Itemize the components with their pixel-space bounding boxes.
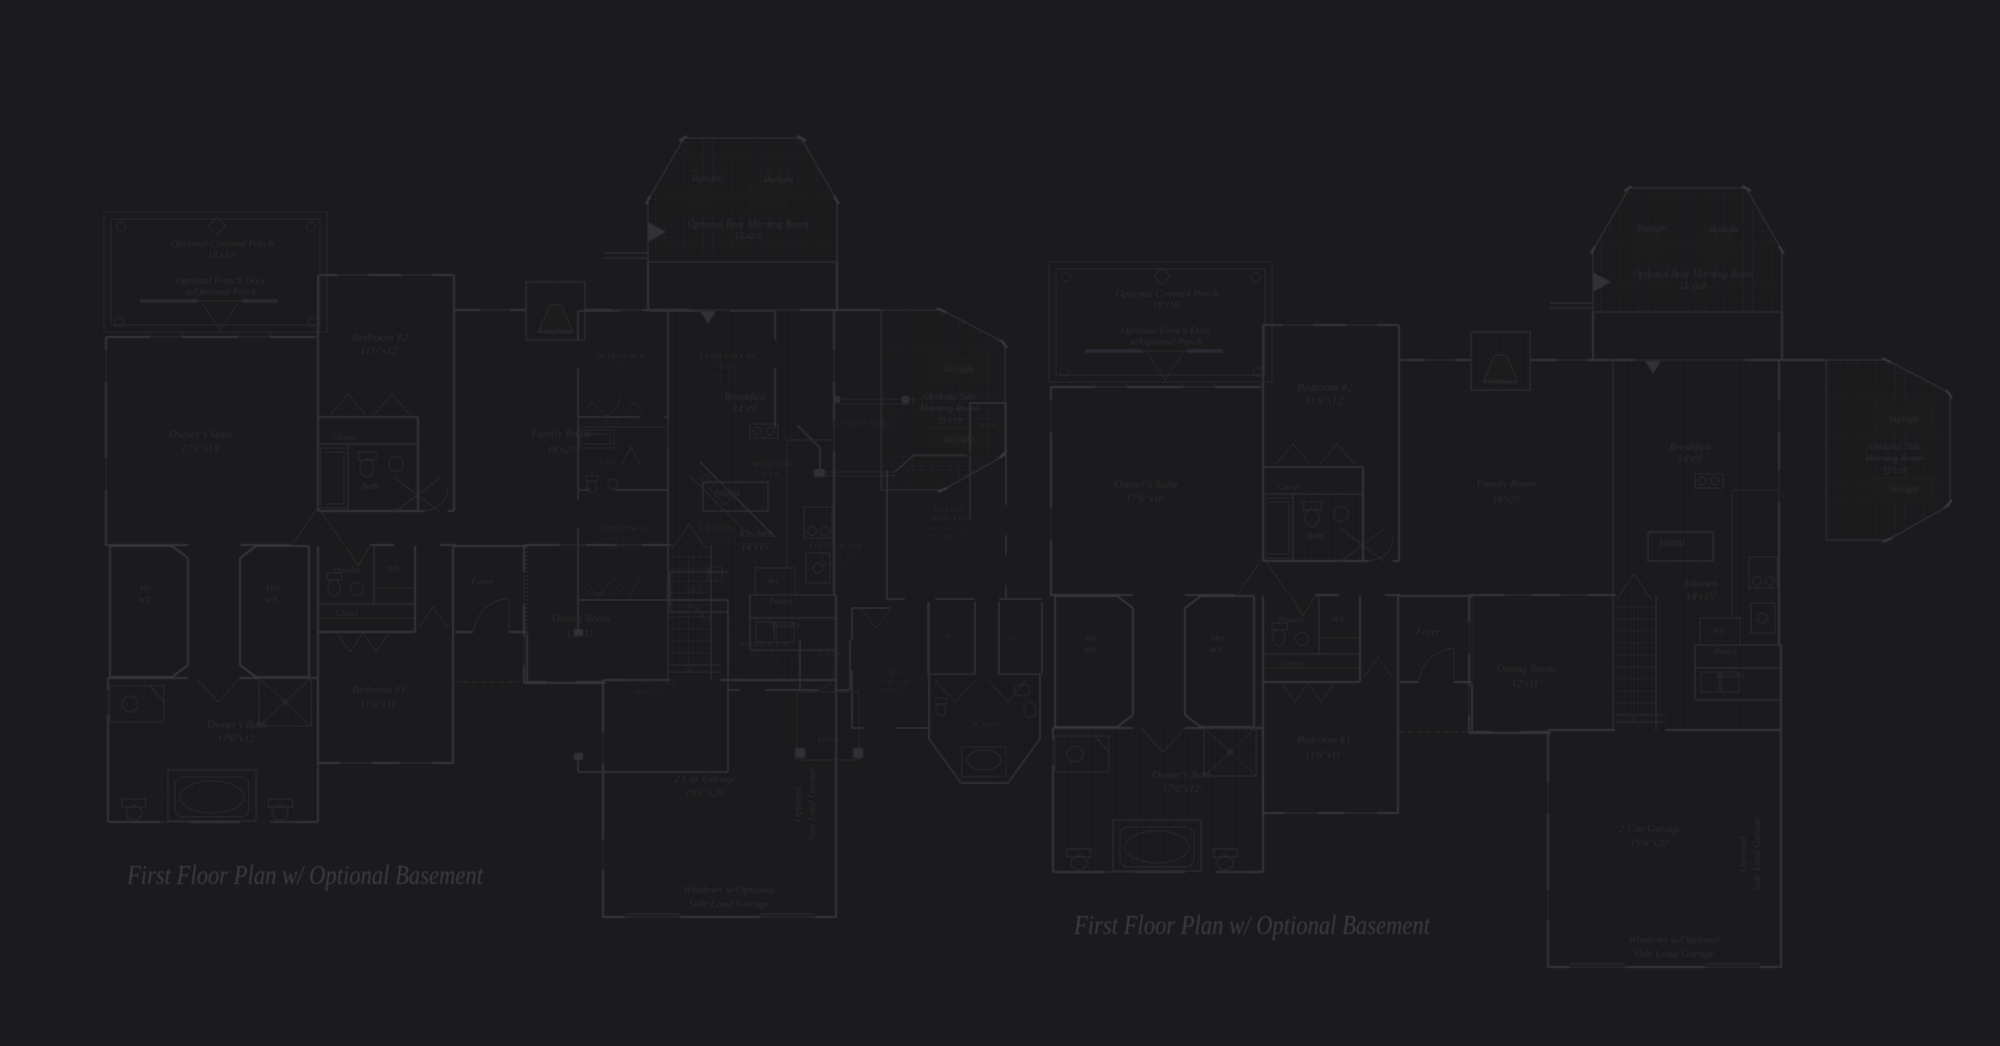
svg-text:First Floor Plan w/ Optional: First Floor Plan w/ Optional Basement xyxy=(126,860,484,890)
svg-text:Bedroom #1: Bedroom #1 xyxy=(352,684,406,696)
svg-text:Fireplace: Fireplace xyxy=(538,326,572,336)
svg-text:WIC: WIC xyxy=(265,595,282,605)
svg-text:Bedroom #2: Bedroom #2 xyxy=(352,332,408,344)
svg-text:11'-2"x13'-0": 11'-2"x13'-0" xyxy=(699,536,734,543)
svg-text:13'-6"x17'-10": 13'-6"x17'-10" xyxy=(817,553,855,560)
svg-text:18'x10': 18'x10' xyxy=(208,250,238,261)
svg-text:Closet: Closet xyxy=(332,432,356,442)
svg-text:Her: Her xyxy=(265,583,280,593)
svg-text:ENTRY: ENTRY xyxy=(818,736,841,744)
svg-text:2 Car Garage: 2 Car Garage xyxy=(674,773,736,785)
svg-text:Closet: Closet xyxy=(335,608,359,618)
svg-text:9'-0" TRAY CLG: 9'-0" TRAY CLG xyxy=(929,534,968,540)
svg-text:Optional: Optional xyxy=(793,786,804,822)
svg-text:W: W xyxy=(713,576,719,582)
svg-text:Optional Covered Porch: Optional Covered Porch xyxy=(170,239,273,250)
svg-text:MASTER: MASTER xyxy=(933,505,963,514)
svg-text:Owner's Bath: Owner's Bath xyxy=(207,719,268,731)
svg-text:Skylight: Skylight xyxy=(691,174,722,184)
svg-text:Optional Side: Optional Side xyxy=(924,392,977,402)
svg-text:14'x15': 14'x15' xyxy=(741,542,772,553)
svg-text:Skylight: Skylight xyxy=(944,365,975,375)
svg-text:17'-8"x15'-2": 17'-8"x15'-2" xyxy=(710,364,745,371)
svg-text:His: His xyxy=(139,583,153,593)
svg-text:17'6"x12': 17'6"x12' xyxy=(217,734,258,745)
svg-text:W.I.C.: W.I.C. xyxy=(946,633,963,640)
svg-text:Ref.: Ref. xyxy=(767,576,780,585)
svg-text:1 CAR GARAGE: 1 CAR GARAGE xyxy=(624,678,679,687)
svg-text:UTILITY: UTILITY xyxy=(682,587,710,595)
svg-text:w/Optional Porch: w/Optional Porch xyxy=(185,287,257,298)
svg-text:20'-4"x12'-8": 20'-4"x12'-8" xyxy=(634,689,669,696)
svg-text:9'-0" CLG: 9'-0" CLG xyxy=(881,688,907,694)
svg-text:FOYER: FOYER xyxy=(817,650,842,659)
svg-text:11'6"x11': 11'6"x11' xyxy=(360,700,399,711)
svg-text:LIVING ROOM: LIVING ROOM xyxy=(809,541,863,550)
svg-text:15'x10': 15'x10' xyxy=(734,232,762,242)
svg-text:11'-4"x11'-0": 11'-4"x11'-0" xyxy=(878,680,910,686)
svg-text:First Floor Plan w/ Optional: First Floor Plan w/ Optional Basement xyxy=(1073,910,1431,940)
svg-text:11'-0" CLG: 11'-0" CLG xyxy=(607,373,637,380)
svg-text:KITCHEN: KITCHEN xyxy=(698,524,733,533)
svg-text:BATH: BATH xyxy=(600,459,617,466)
svg-text:CLOSET: CLOSET xyxy=(590,592,611,598)
svg-text:15'x10': 15'x10' xyxy=(937,416,964,426)
svg-text:Side Load Garage: Side Load Garage xyxy=(689,898,770,910)
svg-text:19'6"x20': 19'6"x20' xyxy=(685,788,726,799)
svg-text:BEDROOM #2: BEDROOM #2 xyxy=(597,352,647,361)
svg-text:DEN: DEN xyxy=(886,668,902,677)
svg-text:M. BATH: M. BATH xyxy=(972,721,1000,729)
svg-text:Optional Rear Morning Room: Optional Rear Morning Room xyxy=(688,219,809,230)
svg-text:NOOK: NOOK xyxy=(761,471,781,479)
svg-text:WIC: WIC xyxy=(138,595,155,605)
svg-text:Laundry: Laundry xyxy=(771,620,801,630)
svg-text:11'-0"x13'-2": 11'-0"x13'-2" xyxy=(747,652,782,659)
svg-text:Powder: Powder xyxy=(332,565,361,575)
svg-text:BREAKFAST: BREAKFAST xyxy=(751,461,792,469)
svg-text:Side Load Garage: Side Load Garage xyxy=(807,767,818,841)
svg-text:BATH: BATH xyxy=(980,423,996,429)
svg-text:CLOSET: CLOSET xyxy=(602,420,623,426)
svg-text:16'-8"x13'-6"(13'-4"): 16'-8"x13'-6"(13'-4") xyxy=(925,525,972,532)
svg-text:Breakfast: Breakfast xyxy=(724,391,767,403)
svg-text:BEDROOM #3: BEDROOM #3 xyxy=(597,524,647,533)
svg-text:11'-4"x12'-0": 11'-4"x12'-0" xyxy=(605,364,640,371)
svg-text:FAMILY ROOM: FAMILY ROOM xyxy=(700,352,755,361)
svg-text:BEDROOM: BEDROOM xyxy=(929,514,967,523)
svg-text:DINING ROOM: DINING ROOM xyxy=(738,640,789,649)
svg-text:17'6"x18': 17'6"x18' xyxy=(181,444,222,455)
svg-text:Dining Room: Dining Room xyxy=(551,613,611,625)
svg-text:Foyer: Foyer xyxy=(470,577,495,588)
svg-text:9'-0" CLG: 9'-0" CLG xyxy=(608,545,635,552)
svg-text:Skylight: Skylight xyxy=(763,175,794,185)
svg-text:Optional French Door: Optional French Door xyxy=(176,276,266,287)
svg-text:9'-0" CLG: 9'-0" CLG xyxy=(822,561,849,568)
svg-text:11'-4"x11'-0": 11'-4"x11'-0" xyxy=(605,536,640,543)
svg-text:14'x9': 14'x9' xyxy=(733,404,759,415)
svg-text:Owner's Suite: Owner's Suite xyxy=(169,429,233,441)
svg-text:WIC: WIC xyxy=(387,564,404,574)
svg-text:9'-0" CLG: 9'-0" CLG xyxy=(713,373,740,380)
svg-text:COVERED PATIO: COVERED PATIO xyxy=(831,419,889,428)
svg-text:Pantry: Pantry xyxy=(768,596,792,606)
svg-text:18'x20: 18'x20 xyxy=(547,445,576,456)
svg-text:11'6"x12': 11'6"x12' xyxy=(360,346,400,357)
svg-text:Bath: Bath xyxy=(362,481,379,491)
svg-text:W.I.C.: W.I.C. xyxy=(1007,635,1024,642)
svg-text:Windows w/Optional: Windows w/Optional xyxy=(683,884,775,896)
